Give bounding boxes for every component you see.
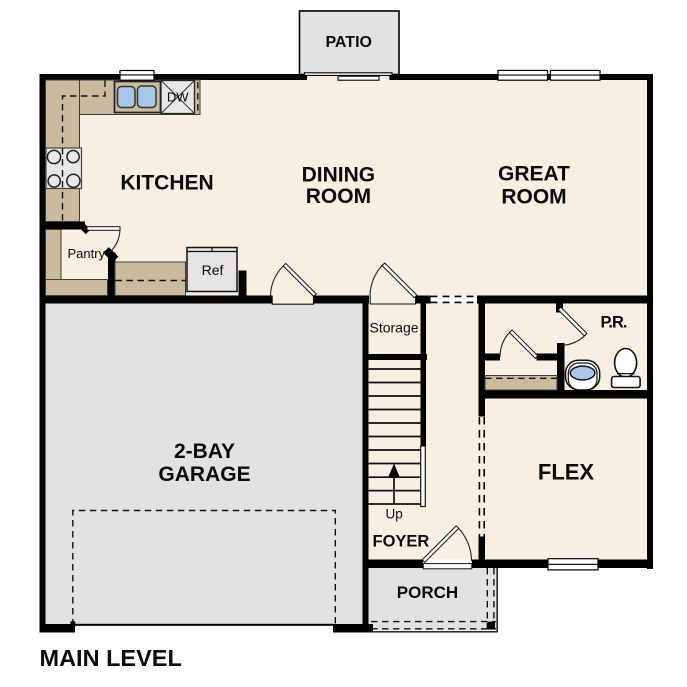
svg-text:Pantry: Pantry	[68, 246, 106, 261]
svg-text:DW: DW	[167, 90, 189, 105]
svg-text:DINING: DINING	[302, 163, 376, 186]
svg-text:PATIO: PATIO	[325, 34, 372, 51]
svg-text:FLEX: FLEX	[538, 460, 595, 485]
svg-text:Storage: Storage	[370, 320, 419, 336]
svg-text:GREAT: GREAT	[498, 163, 570, 186]
svg-text:ROOM: ROOM	[501, 186, 566, 209]
svg-text:2-BAY: 2-BAY	[174, 440, 235, 463]
svg-text:ROOM: ROOM	[306, 185, 371, 208]
svg-text:P.R.: P.R.	[601, 314, 627, 332]
svg-text:MAIN LEVEL: MAIN LEVEL	[40, 645, 182, 671]
svg-text:KITCHEN: KITCHEN	[120, 171, 213, 194]
svg-text:GARAGE: GARAGE	[158, 463, 250, 486]
svg-text:Up: Up	[386, 507, 403, 522]
svg-text:Ref: Ref	[202, 262, 224, 278]
svg-text:FOYER: FOYER	[373, 533, 430, 551]
svg-text:PORCH: PORCH	[397, 583, 458, 602]
